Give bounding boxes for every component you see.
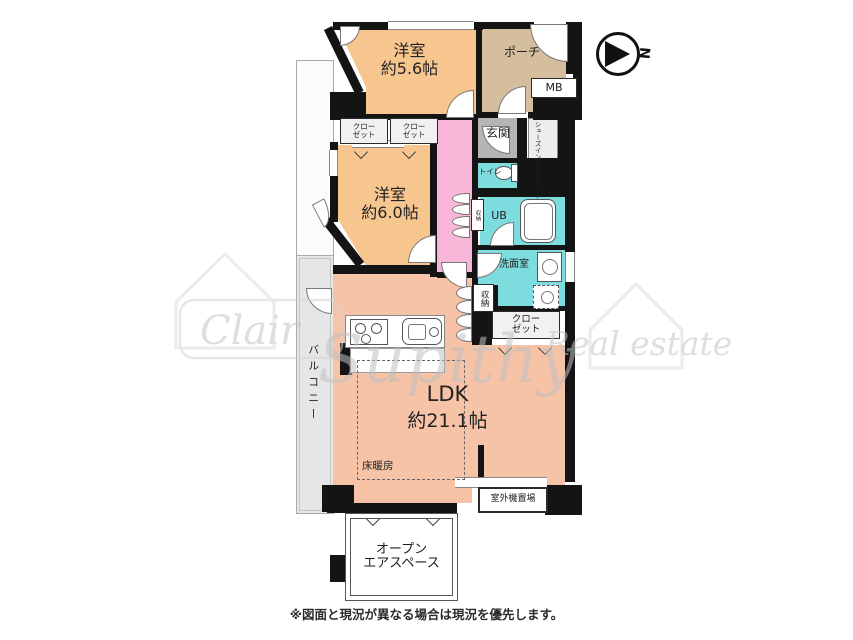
shoes-in-closet-label: シューズインクローゼット (532, 121, 541, 177)
stove (350, 319, 388, 345)
washer-drum (541, 291, 554, 304)
stove-burner (371, 323, 382, 334)
wall (565, 190, 575, 482)
wall (472, 188, 565, 197)
floor-heating-label: 床暖房 (362, 460, 402, 472)
bedroom1-label: 洋室約5.6帖 (352, 42, 467, 79)
closet-2-label: クローゼット (403, 123, 426, 140)
closet-1-label: クローゼット (353, 123, 376, 140)
meter-box-label: MB (545, 82, 562, 94)
watermark-text-left: Clair (200, 308, 302, 354)
watermark-house-right-icon (590, 284, 682, 368)
kitchen-sink (402, 318, 442, 345)
window (388, 21, 474, 30)
basin-bowl (542, 259, 558, 275)
faucet (429, 327, 439, 337)
wall (472, 158, 522, 163)
sink-basin (408, 324, 426, 340)
wall (472, 245, 565, 250)
meter-box: MB (531, 78, 577, 98)
wall (476, 22, 534, 29)
wall (322, 485, 354, 512)
north-arrow: N (596, 32, 656, 76)
north-arrow-triangle (605, 41, 630, 67)
open-air-space-box: オープンエアスペース (345, 513, 458, 601)
window (329, 150, 338, 176)
storage-hall: 収納 (473, 284, 494, 312)
north-arrow-n-label: N (635, 46, 652, 59)
window (565, 252, 575, 282)
washing-machine (533, 285, 559, 309)
storage-ub-label: 収納 (474, 210, 480, 221)
stove-burner (361, 334, 371, 344)
bathtub-inner (524, 203, 553, 240)
floor-plan-page: クローゼット クローゼット クローゼット 収納 収納 MB 室外機置場 オープン… (0, 0, 853, 640)
bathtub (520, 199, 556, 243)
wall (333, 265, 437, 274)
closet-1: クローゼット (340, 118, 388, 144)
outdoor-unit-box: 室外機置場 (478, 487, 548, 513)
toilet-tank (511, 164, 518, 182)
porch-label: ポーチ (492, 46, 552, 60)
stove-burner (355, 323, 366, 334)
outdoor-unit-label: 室外機置場 (490, 495, 535, 505)
storage-hall-label: 収納 (479, 290, 488, 307)
wall (517, 118, 527, 162)
storage-ub-side: 収納 (471, 199, 484, 231)
balcony-label: バルコニー (306, 326, 319, 441)
wall (478, 445, 484, 479)
wall (476, 112, 498, 118)
entrance-label: 玄関 (479, 127, 517, 141)
disclaimer-text: ※図面と現況が異なる場合は現況を優先します。 (0, 608, 853, 622)
closet-ldk: クローゼット (492, 311, 560, 339)
closet-2: クローゼット (390, 118, 438, 144)
ldk-label: LDK約21.1帖 (385, 381, 510, 434)
wall (472, 312, 492, 345)
open-air-space-label: オープンエアスペース (363, 543, 439, 572)
wall (330, 92, 366, 120)
unit-bath-label: UB (486, 210, 512, 223)
wall (545, 485, 582, 515)
washbasin (537, 252, 562, 282)
bedroom2-label: 洋室約6.0帖 (335, 186, 445, 223)
toilet-label: トイレ (478, 168, 502, 177)
washroom-label: 洗面室 (494, 259, 534, 271)
watermark-house-left-icon (176, 254, 274, 348)
wall (476, 22, 482, 118)
closet-ldk-label: クローゼット (512, 315, 541, 336)
